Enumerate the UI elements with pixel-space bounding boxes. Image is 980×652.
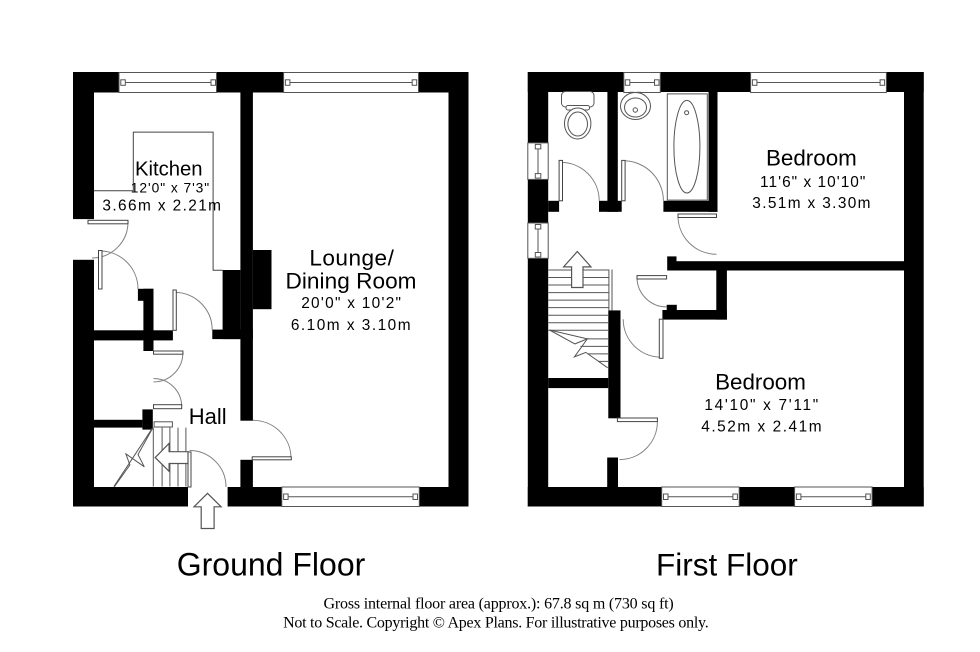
svg-text:6.10m x 3.10m: 6.10m x 3.10m <box>291 317 411 334</box>
svg-text:Ground Floor: Ground Floor <box>177 547 366 583</box>
svg-text:Bedroom: Bedroom <box>715 370 806 395</box>
svg-text:First Floor: First Floor <box>656 547 798 583</box>
svg-text:Gross internal floor area (app: Gross internal floor area (approx.): 67.… <box>324 596 674 613</box>
svg-text:11'6" x 10'10": 11'6" x 10'10" <box>760 174 865 191</box>
svg-text:12'0" x 7'3": 12'0" x 7'3" <box>131 181 209 196</box>
svg-text:Hall: Hall <box>189 404 227 429</box>
svg-text:Dining Room: Dining Room <box>286 269 417 294</box>
svg-text:Not to Scale. Copyright © Apex: Not to Scale. Copyright © Apex Plans. Fo… <box>283 615 709 632</box>
svg-text:20'0" x 10'2": 20'0" x 10'2" <box>301 295 401 312</box>
svg-text:Lounge/: Lounge/ <box>309 246 394 271</box>
svg-text:3.51m x 3.30m: 3.51m x 3.30m <box>752 195 870 212</box>
svg-text:3.66m x 2.21m: 3.66m x 2.21m <box>102 198 221 215</box>
svg-text:Kitchen: Kitchen <box>135 159 203 181</box>
svg-text:Bedroom: Bedroom <box>766 146 857 171</box>
svg-text:4.52m x 2.41m: 4.52m x 2.41m <box>701 419 821 436</box>
